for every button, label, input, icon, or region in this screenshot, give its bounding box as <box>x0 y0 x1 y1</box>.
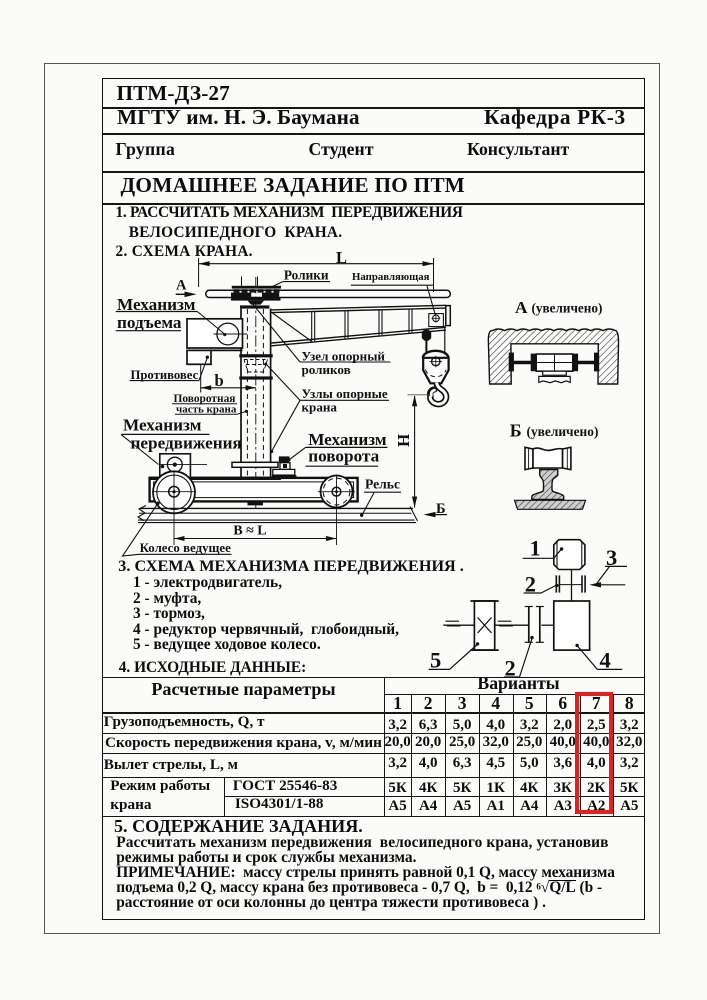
svg-text:1: 1 <box>530 536 541 561</box>
svg-text:роликов: роликов <box>302 362 351 377</box>
svg-text:b: b <box>215 371 224 390</box>
svg-text:4: 4 <box>600 648 611 673</box>
svg-text:Б: Б <box>510 421 522 441</box>
svg-text:Н: Н <box>394 434 413 447</box>
svg-text:5: 5 <box>430 648 441 673</box>
svg-text:А: А <box>515 298 528 317</box>
svg-text:крана: крана <box>302 399 338 414</box>
svg-text:(увеличено): (увеличено) <box>532 301 603 316</box>
svg-text:поворота: поворота <box>308 446 379 465</box>
svg-text:Противовес: Противовес <box>131 368 199 382</box>
svg-text:подъема: подъема <box>117 313 182 332</box>
svg-text:(увеличено): (увеличено) <box>527 424 599 439</box>
svg-text:А: А <box>176 278 187 294</box>
svg-text:Колесо ведущее: Колесо ведущее <box>140 541 232 555</box>
svg-text:L: L <box>336 248 347 267</box>
svg-text:Ролики: Ролики <box>284 268 329 283</box>
svg-text:Направляющая: Направляющая <box>352 271 430 283</box>
svg-text:B ≈ L: B ≈ L <box>233 523 266 538</box>
svg-text:часть крана: часть крана <box>176 403 237 415</box>
svg-text:передвижения: передвижения <box>131 433 242 452</box>
svg-text:Рельс: Рельс <box>365 477 400 492</box>
svg-text:Механизм: Механизм <box>123 416 202 435</box>
